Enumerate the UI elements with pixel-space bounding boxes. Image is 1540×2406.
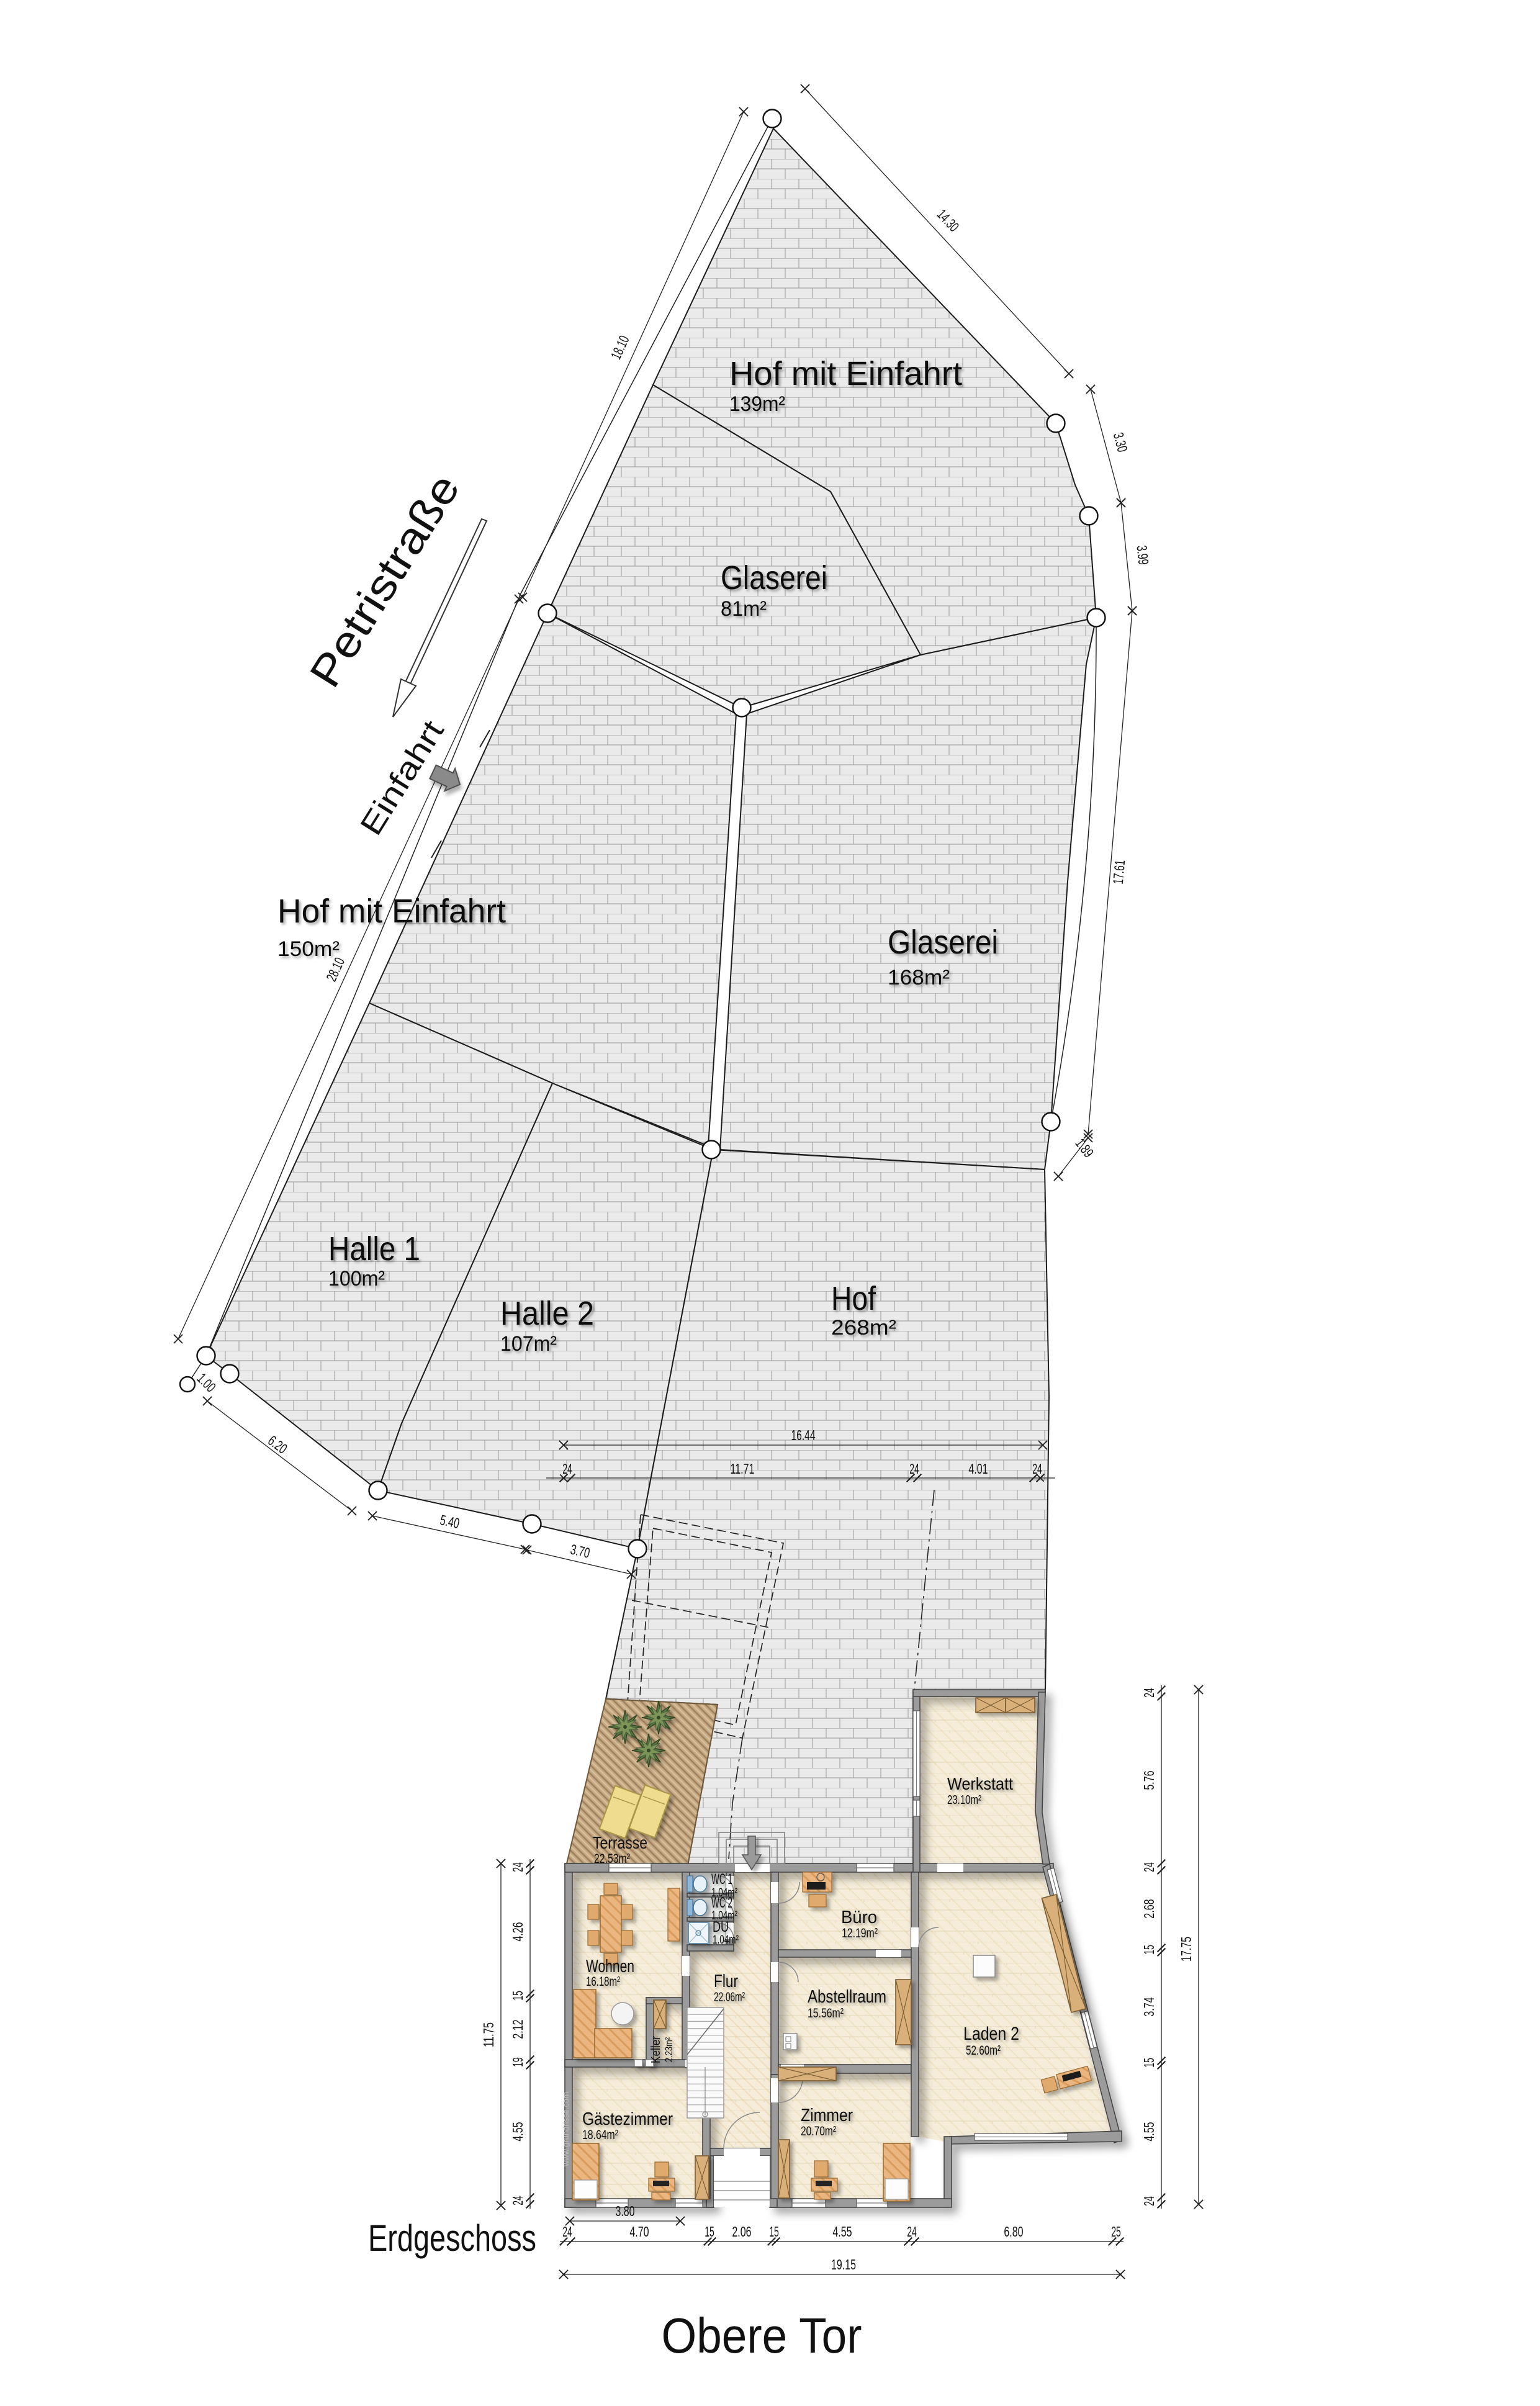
svg-text:11.71: 11.71 <box>731 1461 755 1477</box>
svg-text:12.19m²: 12.19m² <box>842 1926 878 1940</box>
svg-text:Halle 1: Halle 1 <box>328 1230 420 1268</box>
svg-text:2.68: 2.68 <box>1141 1899 1157 1918</box>
svg-text:4.55: 4.55 <box>1141 2122 1157 2141</box>
svg-text:Halle 2: Halle 2 <box>500 1295 594 1332</box>
svg-text:150m²: 150m² <box>277 937 340 961</box>
svg-text:4.55: 4.55 <box>510 2122 526 2141</box>
svg-text:Zimmer: Zimmer <box>801 2106 853 2125</box>
svg-text:16.18m²: 16.18m² <box>586 1975 620 1989</box>
svg-text:DU: DU <box>713 1919 729 1935</box>
svg-text:19.15: 19.15 <box>831 2256 856 2273</box>
svg-text:24: 24 <box>907 2224 917 2240</box>
svg-text:2.12: 2.12 <box>510 2019 526 2039</box>
svg-text:15: 15 <box>510 1991 526 2001</box>
svg-text:Flur: Flur <box>714 1971 738 1991</box>
svg-text:24: 24 <box>1141 1862 1157 1872</box>
svg-text:15: 15 <box>769 2224 779 2240</box>
svg-text:24: 24 <box>1141 2196 1157 2206</box>
svg-text:Werkstatt: Werkstatt <box>947 1774 1013 1793</box>
svg-text:17.75: 17.75 <box>1178 1937 1194 1962</box>
svg-text:139m²: 139m² <box>729 392 785 416</box>
svg-text:52.60m²: 52.60m² <box>966 2043 1001 2058</box>
svg-text:19: 19 <box>510 2057 526 2067</box>
svg-text:24: 24 <box>562 1461 572 1477</box>
svg-text:23.10m²: 23.10m² <box>947 1793 981 1807</box>
svg-text:1.04m²: 1.04m² <box>713 1934 739 1947</box>
svg-text:6.80: 6.80 <box>1004 2224 1023 2240</box>
svg-text:2.23m²: 2.23m² <box>663 2037 675 2062</box>
svg-text:11.75: 11.75 <box>480 2022 497 2047</box>
svg-text:Erdgeschoss: Erdgeschoss <box>368 2217 536 2259</box>
svg-text:22.06m²: 22.06m² <box>714 1990 745 2004</box>
svg-text:Hof mit Einfahrt: Hof mit Einfahrt <box>729 355 962 392</box>
svg-text:17.61: 17.61 <box>1110 859 1128 885</box>
svg-text:20.70m²: 20.70m² <box>801 2124 836 2138</box>
svg-text:3.99: 3.99 <box>1133 544 1151 565</box>
svg-text:Obere Tor: Obere Tor <box>662 2308 862 2363</box>
svg-text:Glaserei: Glaserei <box>721 559 827 597</box>
svg-text:24: 24 <box>1141 1688 1157 1698</box>
svg-text:107m²: 107m² <box>500 1332 557 1356</box>
svg-text:WC 2: WC 2 <box>711 1895 732 1911</box>
svg-text:168m²: 168m² <box>888 966 950 989</box>
svg-text:WC 1: WC 1 <box>711 1871 732 1888</box>
svg-text:100m²: 100m² <box>328 1267 385 1291</box>
svg-text:Abstellraum: Abstellraum <box>808 1987 886 2007</box>
svg-text:24: 24 <box>510 2196 526 2205</box>
svg-text:Terrasse: Terrasse <box>593 1833 647 1852</box>
svg-text:Gästezimmer: Gästezimmer <box>582 2109 673 2129</box>
svg-text:4.70: 4.70 <box>629 2224 649 2240</box>
svg-text:Hof: Hof <box>831 1280 876 1317</box>
svg-text:Wohnen: Wohnen <box>586 1957 634 1976</box>
svg-text:3.74: 3.74 <box>1141 1997 1157 2016</box>
svg-text:24: 24 <box>909 1461 919 1477</box>
svg-text:16.44: 16.44 <box>791 1427 816 1443</box>
svg-text:81m²: 81m² <box>721 597 767 621</box>
svg-text:Hof mit Einfahrt: Hof mit Einfahrt <box>277 893 506 930</box>
svg-text:25: 25 <box>1111 2224 1121 2240</box>
svg-text:18.64m²: 18.64m² <box>582 2128 618 2142</box>
svg-text:www.grundrisse.com: www.grundrisse.com <box>561 2092 570 2167</box>
svg-text:4.26: 4.26 <box>510 1922 526 1941</box>
svg-text:24: 24 <box>562 2224 572 2240</box>
svg-text:24: 24 <box>510 1862 526 1872</box>
svg-text:15: 15 <box>1141 1945 1157 1955</box>
svg-text:268m²: 268m² <box>831 1316 896 1340</box>
svg-text:3.80: 3.80 <box>616 2203 635 2219</box>
svg-text:Büro: Büro <box>841 1908 877 1927</box>
svg-text:Laden 2: Laden 2 <box>963 2024 1019 2044</box>
svg-text:15: 15 <box>705 2224 714 2240</box>
svg-text:2.06: 2.06 <box>732 2224 751 2240</box>
svg-text:24: 24 <box>1032 1461 1042 1477</box>
svg-text:15: 15 <box>1141 2058 1157 2068</box>
svg-text:Glaserei: Glaserei <box>888 924 998 961</box>
svg-text:5.76: 5.76 <box>1141 1770 1157 1790</box>
svg-text:Keller: Keller <box>649 2036 663 2063</box>
svg-text:4.01: 4.01 <box>968 1461 988 1477</box>
svg-text:4.55: 4.55 <box>832 2224 852 2240</box>
svg-text:15.56m²: 15.56m² <box>808 2006 844 2021</box>
